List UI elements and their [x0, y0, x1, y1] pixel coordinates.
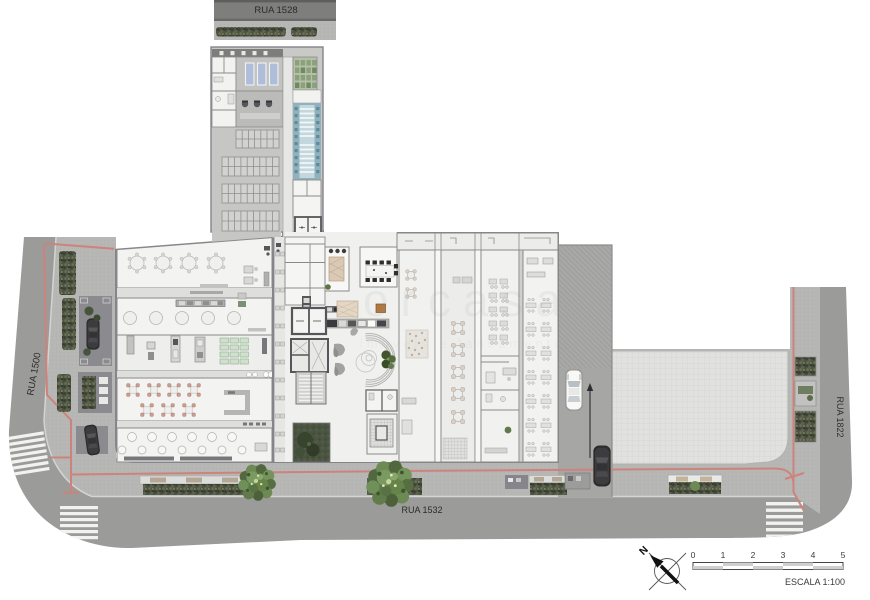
- svg-text:RUA 1528: RUA 1528: [254, 5, 297, 16]
- svg-text:orcasa: orcasa: [363, 274, 573, 326]
- svg-text:ESCALA 1:100: ESCALA 1:100: [785, 577, 845, 587]
- svg-text:3: 3: [781, 550, 786, 560]
- svg-text:RUA 1822: RUA 1822: [835, 396, 845, 437]
- svg-text:2: 2: [751, 550, 756, 560]
- svg-text:RUA 1532: RUA 1532: [401, 505, 442, 515]
- svg-text:5: 5: [841, 550, 846, 560]
- svg-text:4: 4: [811, 550, 816, 560]
- svg-text:0: 0: [691, 550, 696, 560]
- svg-text:1: 1: [721, 550, 726, 560]
- svg-text:imoveis e lancamentos: imoveis e lancamentos: [360, 336, 576, 351]
